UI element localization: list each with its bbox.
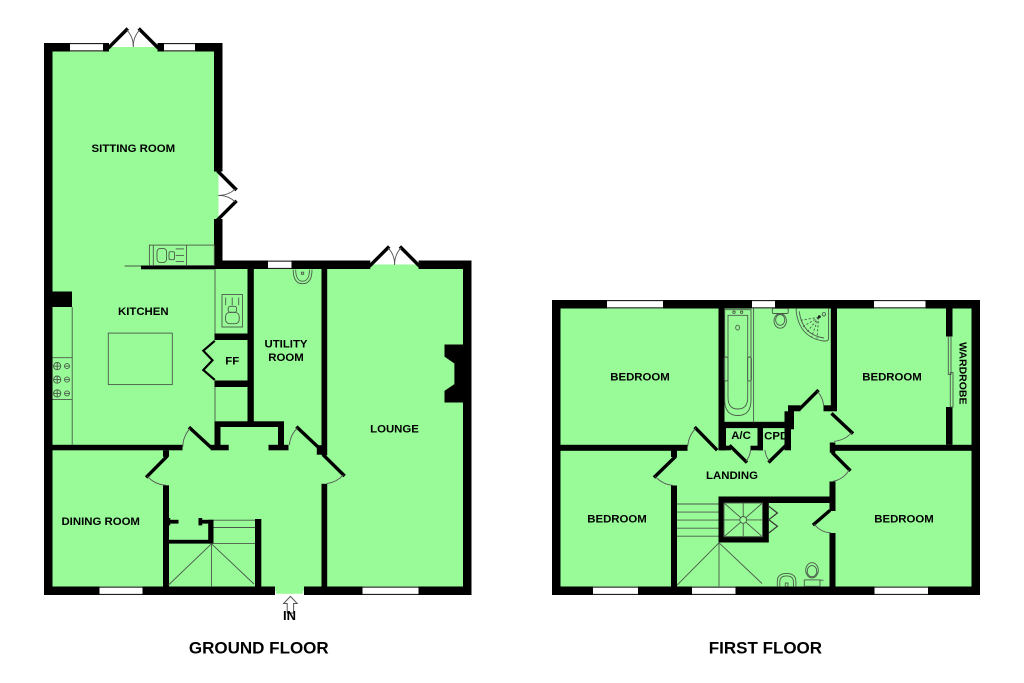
svg-text:A/C: A/C	[731, 430, 751, 442]
svg-text:DINING ROOM: DINING ROOM	[61, 516, 139, 528]
svg-text:GROUND FLOOR: GROUND FLOOR	[189, 638, 329, 657]
svg-text:ROOM: ROOM	[268, 352, 303, 364]
svg-text:BEDROOM: BEDROOM	[862, 371, 921, 383]
svg-text:FF: FF	[225, 356, 239, 368]
svg-text:KITCHEN: KITCHEN	[118, 306, 169, 318]
svg-text:BEDROOM: BEDROOM	[874, 513, 933, 525]
svg-text:IN: IN	[283, 608, 296, 623]
svg-text:BEDROOM: BEDROOM	[610, 371, 669, 383]
svg-text:BEDROOM: BEDROOM	[587, 513, 646, 525]
svg-text:LOUNGE: LOUNGE	[370, 424, 419, 436]
svg-text:FIRST FLOOR: FIRST FLOOR	[709, 638, 822, 657]
svg-text:CPD: CPD	[764, 431, 788, 443]
svg-text:SITTING ROOM: SITTING ROOM	[92, 143, 176, 155]
svg-text:WARDROBE: WARDROBE	[957, 342, 969, 404]
svg-text:LANDING: LANDING	[706, 470, 758, 482]
svg-text:UTILITY: UTILITY	[264, 339, 307, 351]
